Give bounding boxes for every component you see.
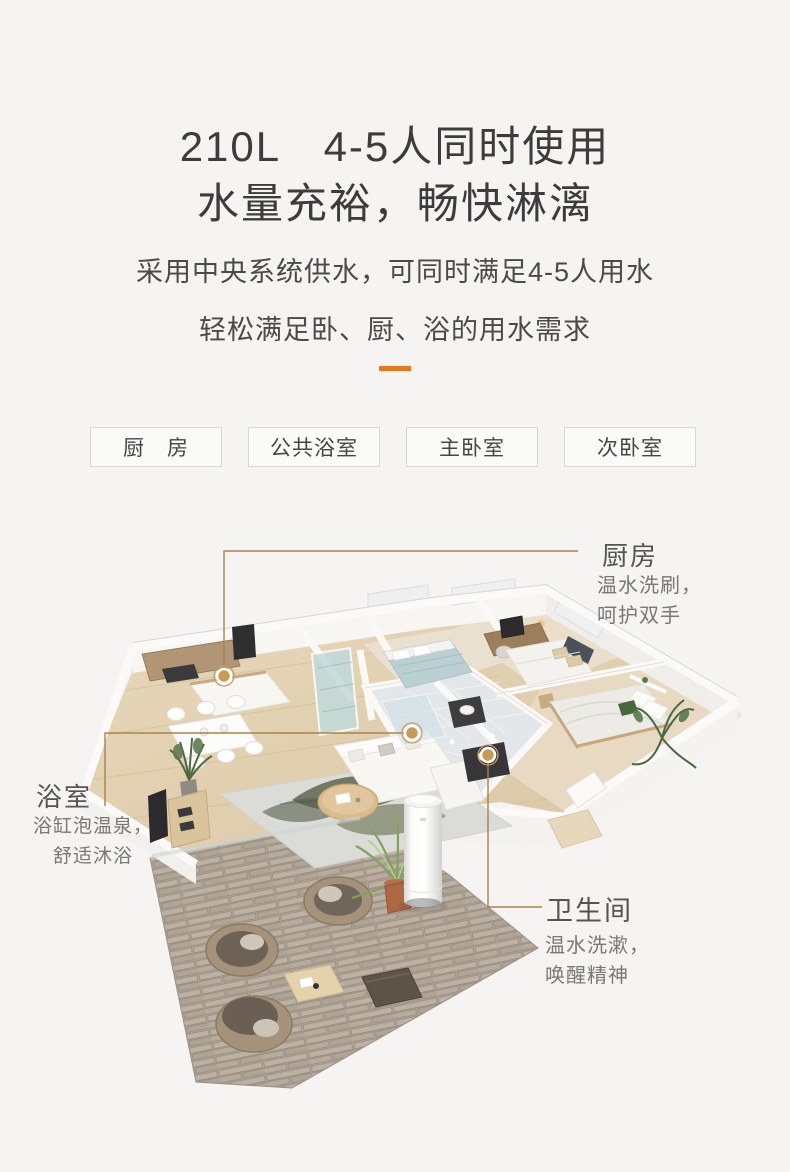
room-tag-second-bedroom: 次卧室	[564, 427, 696, 467]
page-title: 210L 4-5人同时使用 水量充裕，畅快淋漓	[0, 118, 790, 232]
callout-kitchen-desc: 温水洗刷， 呵护双手	[597, 571, 702, 631]
callout-bathroom-title: 浴室	[36, 777, 92, 814]
accent-divider	[379, 366, 411, 371]
water-heater	[398, 795, 448, 913]
callout-bathroom-desc-line2: 舒适沐浴	[14, 842, 172, 872]
callout-bathroom-desc-line1: 浴缸泡温泉，	[14, 812, 172, 842]
subtitle-line-2: 轻松满足卧、厨、浴的用水需求	[0, 301, 790, 359]
room-tag-kitchen: 厨 房	[90, 427, 222, 467]
title-line-1: 210L 4-5人同时使用	[0, 118, 790, 175]
callout-toilet-title: 卫生间	[546, 889, 633, 928]
subtitle-line-1: 采用中央系统供水，可同时满足4-5人用水	[0, 243, 790, 301]
promo-page: 210L 4-5人同时使用 水量充裕，畅快淋漓 采用中央系统供水，可同时满足4-…	[0, 0, 790, 1172]
bathroom-marker	[402, 723, 422, 743]
room-tag-public-bath: 公共浴室	[248, 427, 380, 467]
callout-kitchen-desc-line2: 呵护双手	[597, 601, 702, 631]
callout-toilet-desc-line2: 唤醒精神	[545, 961, 650, 991]
callout-toilet-desc-line1: 温水洗漱，	[545, 931, 650, 961]
callout-kitchen-title: 厨房	[602, 536, 658, 573]
callout-toilet-desc: 温水洗漱， 唤醒精神	[545, 931, 650, 991]
toilet-marker	[478, 745, 498, 765]
kitchen-marker	[214, 666, 234, 686]
callout-bathroom-desc: 浴缸泡温泉， 舒适沐浴	[14, 812, 172, 872]
page-subtitle: 采用中央系统供水，可同时满足4-5人用水 轻松满足卧、厨、浴的用水需求	[0, 243, 790, 359]
title-line-2: 水量充裕，畅快淋漓	[0, 175, 790, 232]
room-tag-master-bedroom: 主卧室	[406, 427, 538, 467]
callout-kitchen-desc-line1: 温水洗刷，	[597, 571, 702, 601]
